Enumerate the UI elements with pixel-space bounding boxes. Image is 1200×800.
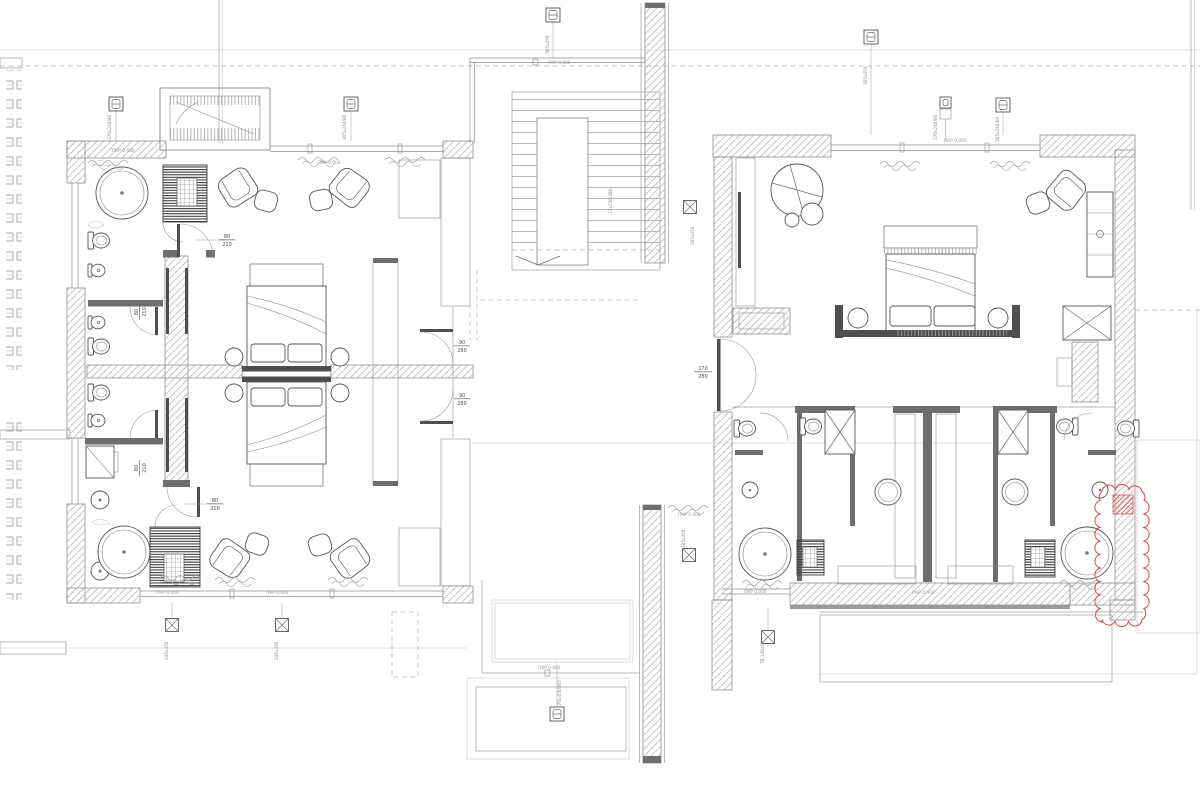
- fireplace: [160, 88, 270, 150]
- entry-doors-170: 170 280: [694, 339, 756, 411]
- vanity-bowl: [1002, 479, 1028, 505]
- svg-text:305x240/80: 305x240/80: [342, 114, 347, 140]
- courtyard-inner-1: [492, 600, 633, 662]
- terrace-marker-label: 170x450/305: [557, 680, 562, 708]
- lower-terrace: 170x450/305: [392, 612, 629, 759]
- right-deck-slats: [1137, 440, 1200, 633]
- bed-suite-top: [225, 264, 349, 372]
- level-mark: ПКР 0.000: [678, 512, 701, 518]
- door-label-170-280: 170 280: [694, 366, 712, 380]
- marker-core-mid: 305x450: [684, 201, 697, 246]
- svg-text:90: 90: [459, 340, 465, 346]
- vanity-shelf: [735, 450, 763, 455]
- svg-text:305x450: 305x450: [690, 226, 695, 245]
- window-marker-right-top: 305x450: [863, 30, 878, 135]
- wardrobe-east-top: [441, 158, 470, 306]
- door-leaf: [197, 487, 200, 517]
- deck-slats: [820, 615, 1112, 682]
- toilet: [88, 384, 110, 401]
- armchair: [327, 536, 373, 582]
- bathroom-right-1: [734, 410, 901, 590]
- vanity-shelf: [1088, 450, 1116, 455]
- marker-core-low: 305x450: [681, 529, 696, 561]
- level-mark: ПКР 0.000: [944, 138, 967, 144]
- svg-text:210: 210: [210, 506, 220, 512]
- window-marker-right-b: 305x240/80: [995, 98, 1010, 142]
- level-mark: ПКР 0.000: [318, 160, 341, 166]
- door-swing: [167, 487, 197, 517]
- vanity-bowl: [875, 479, 901, 505]
- nightstand: [848, 308, 868, 328]
- master-bed-right: [835, 226, 1020, 338]
- bidet: [88, 414, 105, 427]
- svg-text:240x450: 240x450: [164, 641, 169, 660]
- bidet: [88, 316, 105, 329]
- toilet: [734, 420, 756, 437]
- door-label-90-280: 90 280: [454, 393, 470, 407]
- toilet: [88, 338, 110, 355]
- headboard: [242, 377, 331, 383]
- svg-text:305x450: 305x450: [545, 35, 550, 54]
- site-box-topleft: [0, 58, 22, 68]
- armchair: [1044, 167, 1090, 214]
- stair-void: [537, 118, 588, 265]
- svg-text:170: 170: [698, 366, 708, 372]
- wardrobe-ne: [399, 160, 440, 218]
- svg-text:80: 80: [224, 234, 230, 240]
- window-marker-south-b: 240x450: [274, 603, 289, 660]
- level-mark: ПКР 0.000: [112, 148, 135, 154]
- left-wing: 80 210 80 210 80 210 80 210 90: [67, 88, 473, 660]
- level-mark: ПКР 0.000: [538, 665, 561, 671]
- closet-rail-south: [838, 566, 916, 584]
- door-leaf: [155, 410, 158, 438]
- wall-shelf-hatch: [1072, 342, 1098, 402]
- svg-text:305x240/80: 305x240/80: [995, 116, 1000, 142]
- round-table-group: [771, 164, 823, 227]
- door-leaf: [155, 307, 158, 335]
- central-core: ПКР 0.000 21x156/300 ПКР 0.000 ПКР 0.000: [392, 3, 1025, 763]
- armchair: [215, 165, 261, 210]
- toilet: [800, 418, 822, 435]
- staircase: 21x156/300: [512, 92, 660, 270]
- svg-text:280: 280: [457, 348, 467, 354]
- nightstand: [225, 384, 243, 402]
- bidet: [88, 264, 105, 277]
- wardrobe-se: [399, 528, 440, 586]
- left-louver-run-bottom: [6, 418, 22, 600]
- pillow: [288, 388, 322, 406]
- revised-wall-stub: [1110, 600, 1135, 620]
- toilet: [1057, 418, 1079, 435]
- pillow: [934, 306, 975, 326]
- revision-area: [1113, 495, 1133, 514]
- round-bathtub: [739, 528, 791, 580]
- planter: [392, 612, 418, 677]
- svg-text:80: 80: [134, 309, 140, 315]
- svg-text:170x240/80: 170x240/80: [107, 114, 112, 140]
- svg-text:210: 210: [142, 307, 148, 317]
- bench-ticks: [884, 248, 977, 254]
- nightstand: [988, 308, 1008, 328]
- pouf: [785, 213, 799, 227]
- nightstand: [225, 348, 243, 366]
- wardrobe-east-bottom: [441, 439, 470, 586]
- bed-bench: [250, 264, 323, 286]
- nightstand: [331, 384, 349, 402]
- level-mark: ПКР 0.000: [912, 590, 935, 596]
- dresser: [1087, 192, 1113, 277]
- window-marker-right-a: 170x240/80: [933, 97, 951, 141]
- nightstand: [331, 348, 349, 366]
- pillow: [890, 306, 931, 326]
- shelf-unit: [1057, 358, 1072, 386]
- door-swing: [760, 413, 788, 441]
- svg-text:280: 280: [457, 401, 467, 407]
- tv-marker: ТВ 140x60: [760, 609, 775, 665]
- bed-bench: [884, 226, 977, 248]
- ottoman: [308, 188, 334, 212]
- door-label-80-210-rotated: 80 210: [134, 460, 148, 476]
- bed-suite-bottom: [225, 377, 349, 487]
- svg-text:210: 210: [142, 463, 148, 473]
- pillow: [251, 388, 285, 406]
- armchair: [326, 164, 372, 210]
- sauna-bench-grid: [164, 554, 184, 582]
- round-bathtub: [98, 526, 150, 578]
- door-label-80-210: 80 210: [195, 234, 236, 248]
- pebble-decor: [92, 519, 110, 524]
- core-wall-upper: [641, 3, 669, 263]
- closet-rail: [936, 414, 956, 578]
- pouf: [801, 203, 823, 225]
- level-mark: ПКР 0.000: [156, 590, 179, 596]
- door-swing: [421, 332, 453, 364]
- right-wing-walls: [712, 135, 1135, 690]
- south-deck: [820, 612, 1143, 682]
- pillow: [251, 344, 285, 362]
- toilet: [1118, 420, 1140, 437]
- tv-niche: [1063, 306, 1111, 340]
- round-bathtub: [1061, 527, 1113, 579]
- level-mark: ПКР 0.000: [266, 590, 289, 596]
- svg-text:210: 210: [222, 242, 232, 248]
- round-bathtub: [96, 167, 148, 219]
- svg-text:305x450: 305x450: [681, 529, 686, 548]
- door-label-80-210: 80 210: [185, 498, 224, 512]
- left-louver-run-top: [6, 70, 22, 370]
- svg-text:80: 80: [134, 465, 140, 471]
- marker-top-core: 305x450: [545, 8, 560, 57]
- svg-text:ТВ 140x60: ТВ 140x60: [760, 641, 765, 665]
- towel-rail: [114, 452, 118, 472]
- svg-text:170x240/80: 170x240/80: [933, 114, 938, 140]
- door-leaf: [420, 421, 453, 424]
- door-label-90-280: 90 280: [454, 340, 470, 354]
- core-wall-lower: [640, 505, 709, 763]
- ottoman: [306, 532, 333, 558]
- pillow: [288, 344, 322, 362]
- window-marker-south-a: 240x450: [164, 603, 179, 660]
- window-marker-left-b: 305x240/80: [342, 97, 358, 141]
- level-mark: ПКР 0.000: [744, 589, 767, 595]
- door-swing: [421, 389, 453, 421]
- floor-plan-drawing: 80 210 80 210 80 210 80 210 90: [0, 0, 1200, 800]
- svg-text:305x450: 305x450: [863, 66, 868, 85]
- console-ledge: [733, 308, 790, 334]
- door-leaf: [420, 329, 453, 332]
- toilet: [88, 232, 110, 249]
- door-swing: [130, 410, 158, 438]
- level-mark: ПКР 0.000: [548, 60, 571, 66]
- svg-text:240x450: 240x450: [274, 641, 279, 660]
- stair-note: 21x156/300: [608, 188, 613, 214]
- courtyard: ПКР 0.000: [482, 580, 640, 676]
- svg-text:280: 280: [698, 374, 708, 380]
- headboard: [242, 366, 331, 372]
- bed-bench: [250, 464, 323, 486]
- sauna-door-arc: [155, 505, 177, 527]
- closet-rail-south: [948, 566, 1013, 584]
- sauna-bench-grid: [177, 178, 197, 206]
- bathroom-top-left: [88, 160, 207, 355]
- window-marker-left-a: 170x240/80: [107, 97, 123, 141]
- courtyard-inner-2: [495, 603, 630, 659]
- floor-plan-sheet: 80 210 80 210 80 210 80 210 90: [0, 0, 1200, 800]
- svg-text:80: 80: [212, 498, 218, 504]
- svg-text:90: 90: [459, 393, 465, 399]
- right-wing: 170 280: [694, 30, 1149, 690]
- door-leaf: [177, 224, 180, 257]
